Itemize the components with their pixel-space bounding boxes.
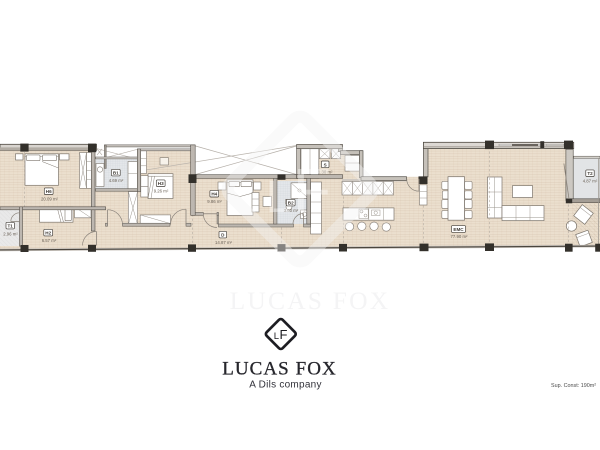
svg-text:H3: H3 — [158, 181, 164, 186]
svg-text:9.86 m²: 9.86 m² — [207, 199, 222, 204]
svg-text:Sup. Const: 190m²: Sup. Const: 190m² — [551, 383, 596, 389]
svg-text:F: F — [293, 157, 331, 226]
svg-text:2.96 m²: 2.96 m² — [3, 231, 18, 236]
svg-text:20.09 m²: 20.09 m² — [41, 197, 59, 202]
svg-text:H4: H4 — [211, 192, 217, 197]
svg-text:6.57 m²: 6.57 m² — [42, 238, 57, 243]
svg-text:77.90 m²: 77.90 m² — [451, 234, 469, 239]
svg-text:T2: T2 — [587, 171, 593, 176]
svg-text:9.26 m²: 9.26 m² — [154, 188, 169, 193]
svg-text:LUCAS FOX: LUCAS FOX — [222, 359, 337, 380]
svg-text:4.87 m²: 4.87 m² — [583, 179, 598, 184]
svg-text:F: F — [280, 327, 288, 342]
svg-text:B1: B1 — [113, 171, 119, 176]
svg-text:L: L — [274, 331, 279, 342]
svg-text:4.69 m²: 4.69 m² — [109, 178, 124, 183]
svg-text:A Dils company: A Dils company — [249, 380, 321, 391]
svg-text:H6: H6 — [46, 189, 52, 194]
svg-text:H2: H2 — [45, 231, 51, 236]
svg-text:EMC: EMC — [453, 227, 464, 232]
svg-text:LUCAS FOX: LUCAS FOX — [230, 286, 391, 315]
svg-text:14.87 m²: 14.87 m² — [215, 240, 233, 245]
svg-text:T1: T1 — [8, 224, 14, 229]
svg-text:L: L — [266, 171, 291, 222]
